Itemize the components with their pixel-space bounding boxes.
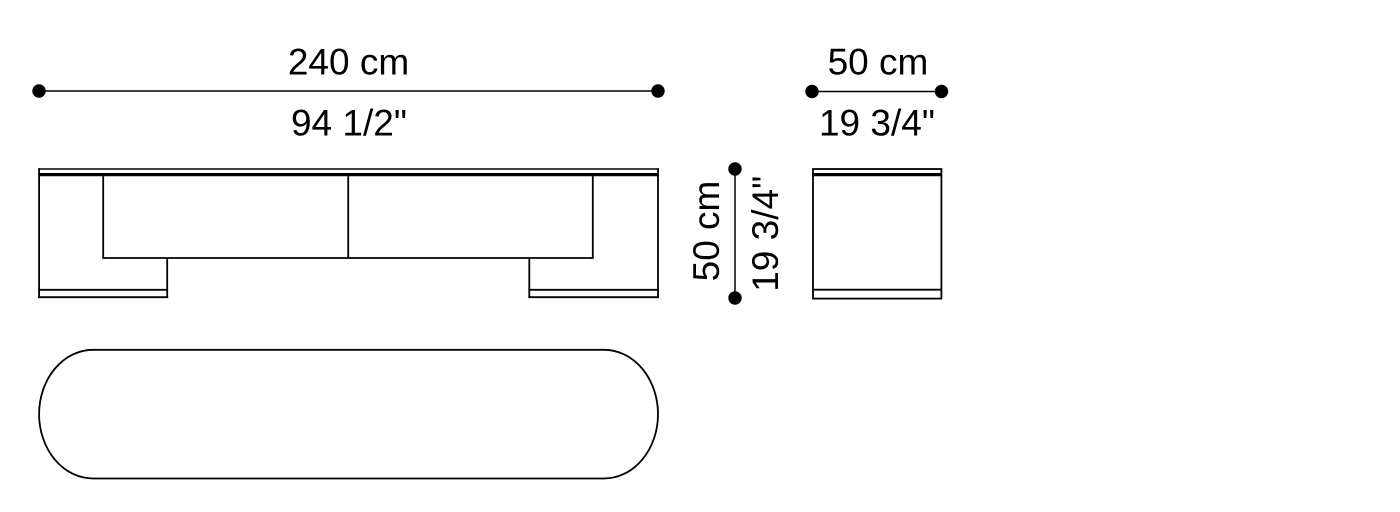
svg-text:50 cm: 50 cm xyxy=(828,41,929,82)
svg-text:19 3/4": 19 3/4" xyxy=(745,176,786,292)
svg-text:19 3/4": 19 3/4" xyxy=(819,103,935,144)
svg-text:240 cm: 240 cm xyxy=(288,41,409,82)
svg-text:50 cm: 50 cm xyxy=(686,181,727,282)
svg-text:94 1/2": 94 1/2" xyxy=(291,103,407,144)
